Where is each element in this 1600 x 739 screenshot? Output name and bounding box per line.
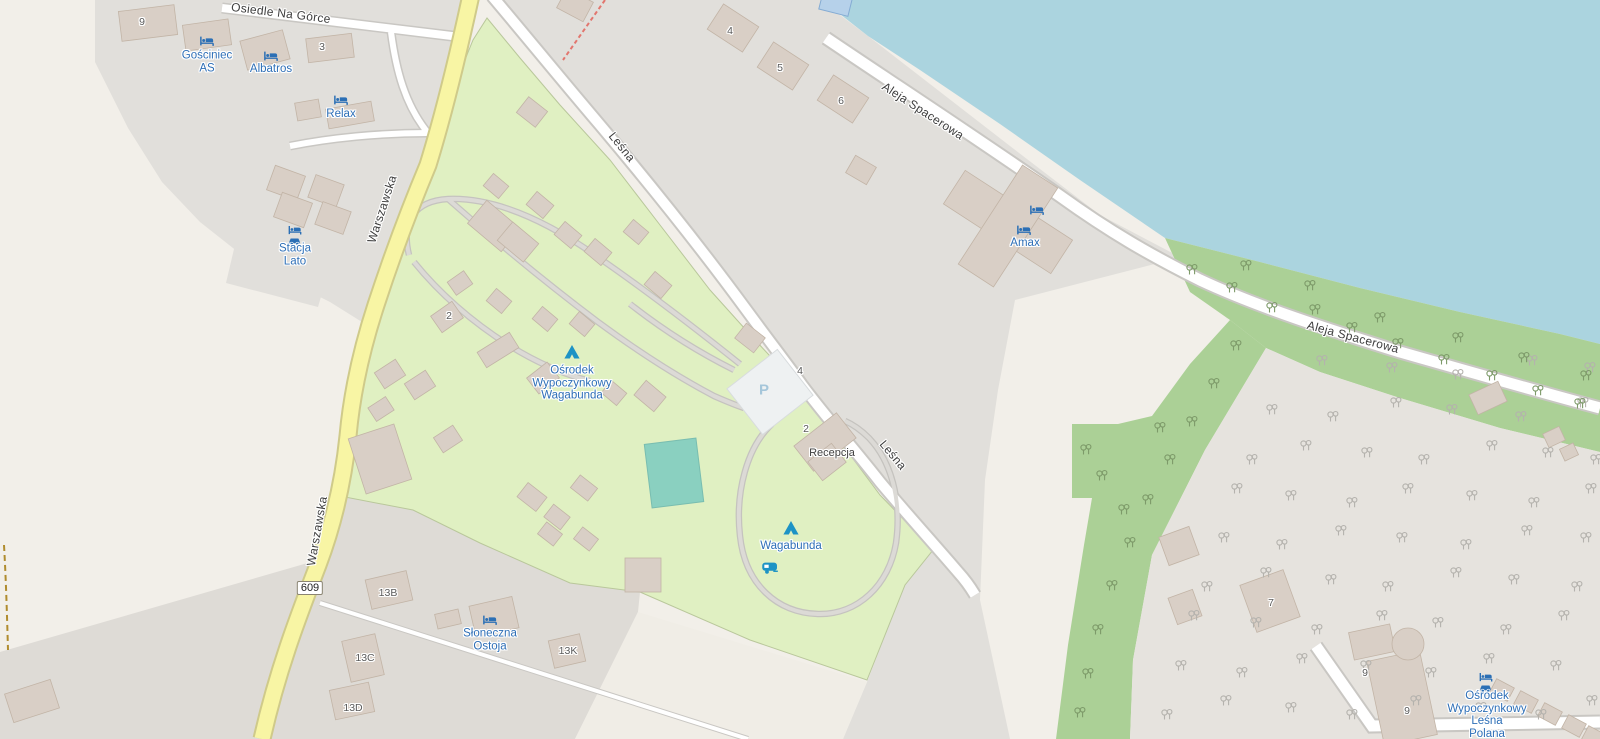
road-label-lesna-2: Leśna <box>877 437 910 472</box>
housenumber: 2 <box>446 310 452 322</box>
map-labels-layer: Osiedle Na Górce Warszawska Warszawska 6… <box>0 0 1600 739</box>
building-label-recepcja: Recepcja <box>809 447 855 459</box>
bed-icon <box>200 36 214 47</box>
housenumber: 13D <box>343 702 362 714</box>
poi-label-stacja-lato: Stacja Lato <box>279 243 311 268</box>
road-label-aleja-spacerowa-2: Aleja Spacerowa <box>1306 318 1401 356</box>
poi-label-lesna-polana: Ośrodek Wypoczynkowy Leśna Polana <box>1447 690 1526 739</box>
poi-label-albatros: Albatros <box>250 63 292 76</box>
bed-icon <box>1017 225 1031 236</box>
poi-label-osrodek-wagabunda: Ośrodek Wypoczynkowy Wagabunda <box>532 364 611 402</box>
road-label-lesna-1: Leśna <box>606 129 638 164</box>
route-badge-609: 609 <box>297 581 323 595</box>
housenumber: 13C <box>355 652 374 664</box>
poi-label-sloneczna-ostoja: Słoneczna Ostoja <box>463 628 517 653</box>
poi-label-relax: Relax <box>326 108 355 121</box>
bed-icon <box>1030 205 1044 216</box>
poi-label-amax: Amax <box>1010 237 1039 250</box>
housenumber: 5 <box>777 62 783 74</box>
housenumber: 9 <box>1404 705 1410 717</box>
housenumber: 9 <box>1362 667 1368 679</box>
tent-icon <box>564 345 580 359</box>
road-label-aleja-spacerowa-1: Aleja Spacerowa <box>880 79 967 142</box>
housenumber: 13B <box>379 587 398 599</box>
road-label-warszawska-1: Warszawska <box>364 173 399 244</box>
housenumber: 2 <box>803 423 809 435</box>
bed-icon <box>289 225 302 235</box>
housenumber: 7 <box>1268 597 1274 609</box>
housenumber: 6 <box>838 95 844 107</box>
tent-icon <box>783 521 799 535</box>
caravan-icon <box>762 562 779 575</box>
bed-icon <box>483 615 497 626</box>
road-label-osiedle-na-gorce: Osiedle Na Górce <box>230 0 331 26</box>
housenumber: 4 <box>797 365 803 377</box>
housenumber: 3 <box>319 41 325 53</box>
bed-icon <box>334 95 348 106</box>
housenumber: 9 <box>139 16 145 28</box>
poi-label-wagabunda-camp: Wagabunda <box>760 540 822 553</box>
bed-icon <box>264 51 278 62</box>
bed-icon <box>1480 672 1493 682</box>
housenumber: 4 <box>727 25 733 37</box>
map-viewport[interactable]: Osiedle Na Górce Warszawska Warszawska 6… <box>0 0 1600 739</box>
parking-label: P <box>759 382 769 399</box>
housenumber: 13K <box>559 645 578 657</box>
poi-label-gosciniec-as: Gościniec AS <box>182 50 233 75</box>
road-label-warszawska-2: Warszawska <box>304 495 330 567</box>
